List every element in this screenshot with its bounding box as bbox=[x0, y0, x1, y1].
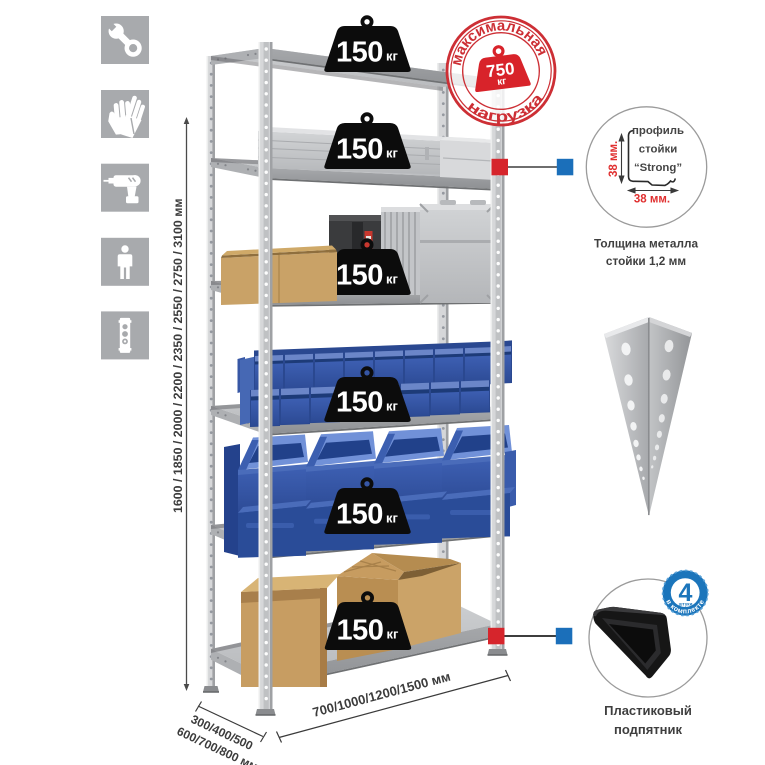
svg-text:38 мм.: 38 мм. bbox=[608, 141, 620, 177]
svg-text:“Strong”: “Strong” bbox=[634, 162, 682, 174]
svg-text:кг: кг bbox=[386, 146, 399, 161]
svg-text:кг: кг bbox=[386, 272, 399, 287]
svg-text:кг: кг bbox=[387, 627, 400, 642]
svg-text:150: 150 bbox=[336, 134, 383, 166]
svg-text:Толщина металла: Толщина металла bbox=[594, 237, 698, 251]
svg-text:150: 150 bbox=[337, 615, 384, 647]
svg-text:штуки: штуки bbox=[679, 602, 693, 607]
svg-text:38 мм.: 38 мм. bbox=[634, 194, 670, 206]
svg-text:1600 / 1850 / 2000 / 2200 / 23: 1600 / 1850 / 2000 / 2200 / 2350 / 2550 … bbox=[171, 198, 185, 513]
svg-text:150: 150 bbox=[336, 387, 383, 419]
svg-text:кг: кг bbox=[386, 399, 399, 414]
svg-text:кг: кг bbox=[497, 76, 507, 88]
svg-text:Пластиковый: Пластиковый bbox=[604, 703, 692, 718]
svg-text:стойки 1,2 мм: стойки 1,2 мм bbox=[606, 254, 686, 268]
svg-text:стойки: стойки bbox=[639, 144, 677, 156]
svg-text:профиль: профиль bbox=[632, 125, 684, 137]
svg-text:150: 150 bbox=[336, 499, 383, 531]
svg-text:кг: кг bbox=[386, 49, 399, 64]
svg-text:150: 150 bbox=[336, 37, 383, 69]
svg-text:150: 150 bbox=[336, 260, 383, 292]
svg-text:подпятник: подпятник bbox=[614, 722, 683, 737]
svg-text:кг: кг bbox=[386, 511, 399, 526]
